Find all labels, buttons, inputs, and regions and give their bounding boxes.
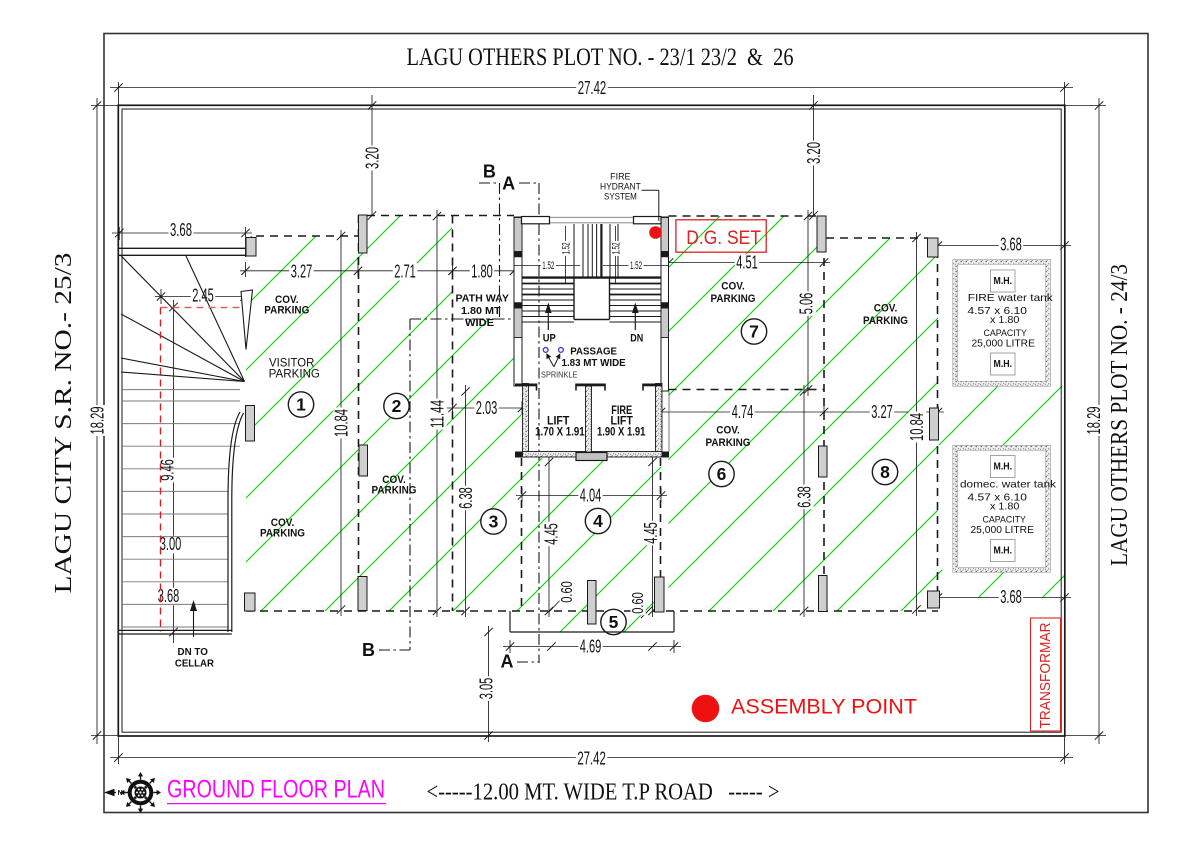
svg-text:3.68: 3.68 <box>170 219 192 240</box>
svg-text:N: N <box>118 790 123 797</box>
svg-text:8: 8 <box>880 462 890 482</box>
svg-text:CELLAR: CELLAR <box>175 658 214 669</box>
svg-text:2.71: 2.71 <box>394 260 416 281</box>
svg-text:6: 6 <box>717 464 727 484</box>
svg-text:3.68: 3.68 <box>1000 234 1022 255</box>
svg-text:18.29: 18.29 <box>1083 407 1104 435</box>
svg-text:10.84: 10.84 <box>331 409 352 437</box>
svg-text:FIRE: FIRE <box>610 171 630 181</box>
svg-text:3.20: 3.20 <box>803 142 824 164</box>
svg-text:4.69: 4.69 <box>580 636 602 657</box>
svg-text:1.52: 1.52 <box>542 260 554 272</box>
svg-text:DN TO: DN TO <box>178 647 209 658</box>
svg-text:<-----12.00 MT. WIDE T.P ROAD: <-----12.00 MT. WIDE T.P ROAD ----- > <box>427 779 780 806</box>
svg-text:3.05: 3.05 <box>476 678 497 700</box>
svg-text:18.29: 18.29 <box>87 407 108 435</box>
svg-text:25,000 LITRE: 25,000 LITRE <box>970 525 1034 536</box>
svg-text:1.80: 1.80 <box>471 260 493 281</box>
svg-text:5.06: 5.06 <box>796 293 817 315</box>
svg-text:2.45: 2.45 <box>192 285 214 306</box>
svg-text:PARKING: PARKING <box>711 293 756 305</box>
svg-text:2.03: 2.03 <box>476 397 498 418</box>
svg-text:M.H.: M.H. <box>994 276 1013 287</box>
svg-text:UP: UP <box>543 333 556 345</box>
svg-text:PARKING: PARKING <box>863 315 908 327</box>
svg-text:1.70 X 1.91: 1.70 X 1.91 <box>535 425 585 438</box>
svg-text:6.38: 6.38 <box>794 486 815 508</box>
svg-text:LAGU OTHERS PLOT NO. - 23/1 23: LAGU OTHERS PLOT NO. - 23/1 23/2 & 26 <box>407 44 794 71</box>
svg-text:M.H.: M.H. <box>994 546 1013 557</box>
svg-text:M.H.: M.H. <box>994 359 1013 370</box>
svg-text:0.60: 0.60 <box>630 592 647 614</box>
svg-text:COV.: COV. <box>721 281 745 293</box>
svg-text:PARKING: PARKING <box>264 304 309 316</box>
svg-text:4.74: 4.74 <box>732 401 754 422</box>
svg-text:PARKING: PARKING <box>706 437 751 449</box>
svg-text:3.68: 3.68 <box>1000 586 1022 607</box>
svg-text:3.20: 3.20 <box>362 147 383 169</box>
svg-text:A: A <box>501 652 514 672</box>
svg-text:x 1.80: x 1.80 <box>990 502 1020 513</box>
svg-text:domec. water tank: domec. water tank <box>960 480 1057 491</box>
svg-text:1.52: 1.52 <box>560 243 572 255</box>
svg-text:M.H.: M.H. <box>994 462 1013 473</box>
svg-text:27.42: 27.42 <box>577 748 606 769</box>
svg-text:FIRE water tank: FIRE water tank <box>968 293 1054 304</box>
svg-text:1: 1 <box>296 395 306 415</box>
svg-text:ASSEMBLY POINT: ASSEMBLY POINT <box>731 696 917 719</box>
svg-text:LAGU OTHERS PLOT NO. - 24/3: LAGU OTHERS PLOT NO. - 24/3 <box>1107 264 1133 566</box>
svg-text:GROUND FLOOR PLAN: GROUND FLOOR PLAN <box>167 775 385 803</box>
svg-text:SYSTEM: SYSTEM <box>604 192 637 202</box>
svg-text:HYDRANT: HYDRANT <box>600 182 641 192</box>
svg-text:2: 2 <box>392 396 402 416</box>
svg-text:7: 7 <box>749 322 759 342</box>
svg-text:PATH WAY: PATH WAY <box>455 294 509 305</box>
svg-text:A: A <box>502 173 515 193</box>
svg-text:TRANSFORMAR: TRANSFORMAR <box>1037 622 1054 728</box>
svg-text:4.04: 4.04 <box>580 485 602 506</box>
svg-text:3.27: 3.27 <box>871 401 893 422</box>
svg-text:4.51: 4.51 <box>736 252 758 273</box>
svg-text:DN: DN <box>630 333 643 345</box>
svg-text:10.84: 10.84 <box>906 413 927 441</box>
svg-text:PARKING: PARKING <box>372 484 417 496</box>
svg-text:1.52: 1.52 <box>610 243 622 255</box>
svg-text:11.44: 11.44 <box>427 400 448 428</box>
svg-text:B: B <box>483 162 496 182</box>
svg-text:1.83 MT WIDE: 1.83 MT WIDE <box>562 358 626 369</box>
svg-text:1.52: 1.52 <box>630 260 642 272</box>
svg-text:PASSAGE: PASSAGE <box>570 347 617 358</box>
svg-text:4: 4 <box>593 511 603 531</box>
svg-text:B: B <box>362 640 375 660</box>
svg-text:PARKING: PARKING <box>260 527 305 539</box>
svg-text:9.46: 9.46 <box>157 459 178 481</box>
svg-text:0.60: 0.60 <box>559 581 576 603</box>
svg-text:COV.: COV. <box>716 425 740 437</box>
svg-text:5: 5 <box>609 612 619 632</box>
svg-text:4.45: 4.45 <box>640 522 661 544</box>
svg-text:COV.: COV. <box>874 303 898 315</box>
svg-text:PARKING: PARKING <box>269 369 320 381</box>
svg-text:CAPACITY: CAPACITY <box>982 515 1025 525</box>
svg-text:WIDE: WIDE <box>465 318 494 329</box>
svg-text:1.80 MT: 1.80 MT <box>461 306 501 317</box>
svg-text:1.90 X 1.91: 1.90 X 1.91 <box>597 425 646 438</box>
svg-text:CAPACITY: CAPACITY <box>983 328 1026 338</box>
svg-text:x 1.80: x 1.80 <box>990 315 1020 326</box>
svg-text:27.42: 27.42 <box>578 77 607 98</box>
svg-text:6.38: 6.38 <box>455 487 476 509</box>
svg-text:25,000 LITRE: 25,000 LITRE <box>971 339 1035 350</box>
svg-text:LAGU CITY S.R. NO.- 25/3: LAGU CITY S.R. NO.- 25/3 <box>51 253 77 594</box>
svg-text:D.G. SET: D.G. SET <box>686 228 761 249</box>
svg-text:3.27: 3.27 <box>291 260 313 281</box>
svg-text:SPRINKLE: SPRINKLE <box>541 370 577 379</box>
svg-text:VISITOR: VISITOR <box>269 357 314 369</box>
svg-text:3: 3 <box>489 512 499 532</box>
svg-text:4.45: 4.45 <box>541 523 562 545</box>
